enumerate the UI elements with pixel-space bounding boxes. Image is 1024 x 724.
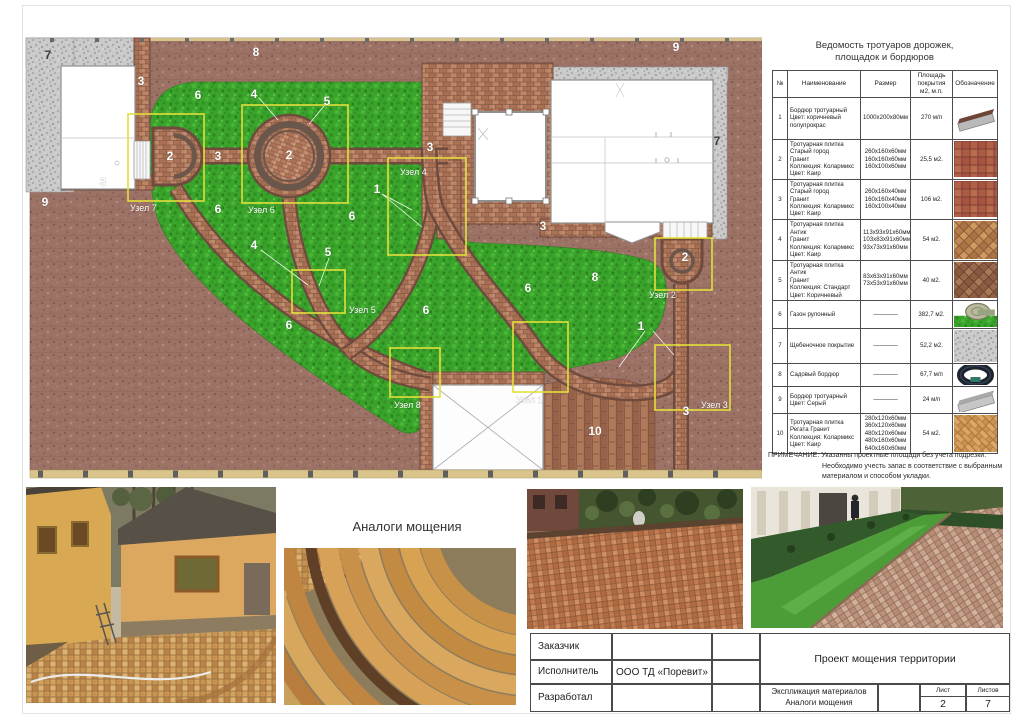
table-cell: 4	[773, 219, 788, 260]
pavers-diamond-tan-swatch	[954, 221, 997, 259]
table-cell: 54 м2.	[911, 219, 953, 260]
coil-swatch	[954, 365, 997, 385]
fence-bottom	[30, 470, 762, 478]
plan-number-label: 9	[42, 195, 49, 209]
table-cell: 52,2 м2.	[911, 329, 953, 364]
table-cell	[953, 414, 998, 454]
table-row: 8Садовый бордюр————67,7 м/п	[773, 364, 998, 387]
table-row: 4Тротуарная плиткаАнтикГранитКоллекция: …	[773, 219, 998, 260]
table-row: 10Тротуарная плиткаРегата ГранитКоллекци…	[773, 414, 998, 454]
titleblock-value-customer	[612, 633, 712, 660]
table-cell: ————	[861, 364, 911, 387]
pavers-diamond-brown-swatch	[954, 262, 997, 298]
plan-node-label: Узел 7	[130, 203, 157, 213]
titleblock-value-developer	[612, 684, 712, 712]
titleblock-label-contractor: Исполнитель	[530, 660, 612, 684]
table-cell: Тротуарная плиткаСтарый городГранитКолле…	[788, 139, 861, 179]
plan-node-label: Узел 4	[400, 167, 427, 177]
herringbone-swatch	[954, 415, 997, 452]
titleblock-cell-empty	[712, 684, 760, 712]
table-cell: 10	[773, 414, 788, 454]
column-header: Обозначение	[953, 70, 998, 97]
table-cell: 280х120х60мм360х120х60мм480х120х60мм480х…	[861, 414, 911, 454]
photos-caption: Аналоги мощения	[322, 519, 492, 534]
table-row: 7Щебеночное покрытие————52,2 м2.	[773, 329, 998, 364]
plan-number-label: 2	[682, 250, 689, 264]
column-header: Площадьпокрытиям2, м.п.	[911, 70, 953, 97]
table-cell: Тротуарная плиткаАнтикГранитКоллекция: К…	[788, 219, 861, 260]
table-cell: 270 м/п	[911, 97, 953, 139]
photo-paving-fan	[284, 548, 516, 710]
table-cell: ————	[861, 387, 911, 414]
materials-table: №НаименованиеРазмерПлощадьпокрытиям2, м.…	[772, 70, 998, 454]
table-row: 6Газон рулонный————382,7 м2.	[773, 301, 998, 329]
table-cell	[953, 329, 998, 364]
table-cell	[953, 260, 998, 300]
column-header: Размер	[861, 70, 911, 97]
plan-number-label: 7	[714, 134, 721, 148]
drawing-sheet: 73896452323713966345286661103 Узел 7Узел…	[0, 0, 1024, 724]
table-row: 3Тротуарная плиткаСтарый городГранитКолл…	[773, 179, 998, 219]
pavers-square-swatch	[954, 141, 997, 177]
titleblock-value-contractor: ООО ТД «Поревит»	[612, 660, 712, 684]
table-cell: Газон рулонный	[788, 301, 861, 329]
plan-number-label: 6	[349, 209, 356, 223]
table-cell: 260х160х40мм160х160х40мм160х100х40мм	[861, 179, 911, 219]
table-cell: 7	[773, 329, 788, 364]
table-row: 5Тротуарная плиткаАнтикГранитКоллекция: …	[773, 260, 998, 300]
titleblock-cell-empty	[712, 633, 760, 660]
plan-number-label: 8	[592, 270, 599, 284]
site-plan-drawing: 73896452323713966345286661103 Узел 7Узел…	[16, 28, 762, 480]
table-cell: Бордюр тротуарныйЦвет: коричневыйполупро…	[788, 97, 861, 139]
plan-number-label: 3	[100, 175, 107, 189]
plan-number-label: 6	[286, 318, 293, 332]
plan-number-label: 8	[253, 45, 260, 59]
table-cell: Тротуарная плиткаАнтикГранитКоллекция: С…	[788, 260, 861, 300]
table-cell: 25,5 м2.	[911, 139, 953, 179]
table-cell	[953, 301, 998, 329]
titleblock-sheet-title: Экспликация материалов Аналоги мощения	[760, 684, 878, 712]
titleblock-label-customer: Заказчик	[530, 633, 612, 660]
table-cell: Щебеночное покрытие	[788, 329, 861, 364]
plan-number-label: 3	[138, 74, 145, 88]
title-block: Заказчик Исполнитель ООО ТД «Поревит» Пр…	[530, 633, 1010, 712]
table-cell: 3	[773, 179, 788, 219]
plan-number-label: 3	[215, 149, 222, 163]
curb-brown-swatch	[954, 99, 997, 138]
titleblock-cell-empty	[878, 684, 920, 712]
table-cell: 1000х200х80мм	[861, 97, 911, 139]
table-row: 9Бордюр тротуарныйЦвет: Серый————24 м/п	[773, 387, 998, 414]
table-cell: 1	[773, 97, 788, 139]
table-cell: ————	[861, 329, 911, 364]
table-cell: 54 м2.	[911, 414, 953, 454]
table-cell	[953, 364, 998, 387]
plan-node-label: Узел 8	[394, 400, 421, 410]
plan-number-label: 1	[374, 182, 381, 196]
photo-paving-alley	[751, 487, 1003, 633]
titleblock-label-developer: Разработал	[530, 684, 612, 712]
plan-number-label: 7	[45, 48, 52, 62]
table-cell: 6	[773, 301, 788, 329]
note: ПРИМЕЧАНИЕ: Указанны проектные площади б…	[768, 451, 1020, 483]
photo-paving-construction	[26, 487, 276, 708]
table-row: 1Бордюр тротуарныйЦвет: коричневыйполупр…	[773, 97, 998, 139]
table-cell: Тротуарная плиткаРегата ГранитКоллекция:…	[788, 414, 861, 454]
plan-number-label: 3	[540, 219, 547, 233]
plan-number-label: 2	[286, 148, 293, 162]
materials-table-title: Ведомость тротуаров дорожек, площадок и …	[769, 40, 1000, 65]
plan-number-label: 6	[423, 303, 430, 317]
note-label: ПРИМЕЧАНИЕ:	[768, 452, 821, 459]
table-cell	[953, 139, 998, 179]
building-main	[551, 80, 713, 243]
plan-number-label: 6	[195, 88, 202, 102]
table-cell: 5	[773, 260, 788, 300]
plan-number-label: 6	[215, 202, 222, 216]
titleblock-sheet-number: Лист2	[920, 684, 966, 712]
table-cell	[953, 179, 998, 219]
note-line: материалом и способом укладки.	[822, 472, 1020, 483]
materials-table-block: Ведомость тротуаров дорожек, площадок и …	[769, 40, 1000, 454]
plan-number-label: 9	[673, 40, 680, 54]
titleblock-cell-empty	[712, 660, 760, 684]
note-line: Необходимо учесть запас в соответствие с…	[822, 462, 1020, 473]
plan-number-label: 4	[251, 87, 258, 101]
table-cell: Садовый бордюр	[788, 364, 861, 387]
garage-pad	[420, 372, 544, 470]
plan-node-label: Узел 6	[248, 205, 275, 215]
curb-gray-swatch	[954, 388, 997, 412]
photo-paving-courtyard	[527, 489, 743, 634]
plan-node-label: Узел 1	[516, 395, 543, 405]
table-cell: 67,7 м/п	[911, 364, 953, 387]
column-header: Наименование	[788, 70, 861, 97]
note-line: ПРИМЕЧАНИЕ: Указанны проектные площади б…	[768, 451, 1020, 462]
plan-number-label: 2	[167, 149, 174, 163]
table-cell: 83х63х91х60мм73х53х91х60мм	[861, 260, 911, 300]
table-cell	[953, 219, 998, 260]
table-cell: 106 м2.	[911, 179, 953, 219]
plan-node-label: Узел 2	[649, 290, 676, 300]
table-cell	[953, 387, 998, 414]
plan-number-label: 4	[251, 238, 258, 252]
plan-number-label: 5	[325, 245, 332, 259]
titleblock-project-title: Проект мощения территории	[760, 633, 1010, 684]
table-cell: 2	[773, 139, 788, 179]
table-cell: 40 м2.	[911, 260, 953, 300]
site-plan: 73896452323713966345286661103 Узел 7Узел…	[16, 28, 762, 480]
table-cell: 382,7 м2.	[911, 301, 953, 329]
table-cell: Бордюр тротуарныйЦвет: Серый	[788, 387, 861, 414]
plan-number-label: 3	[427, 140, 434, 154]
plan-number-label: 3	[683, 404, 690, 418]
plan-node-label: Узел 3	[701, 400, 728, 410]
table-cell: Тротуарная плиткаСтарый городГранитКолле…	[788, 179, 861, 219]
plan-number-label: 10	[588, 424, 602, 438]
pavers-square-swatch	[954, 181, 997, 217]
titleblock-sheets-total: Листов7	[966, 684, 1010, 712]
plan-number-label: 5	[324, 94, 331, 108]
table-row: 2Тротуарная плиткаСтарый городГранитКолл…	[773, 139, 998, 179]
plan-node-label: Узел 5	[349, 305, 376, 315]
table-cell: 113х93х91х60мм103х83х91х60мм93х73х91х60м…	[861, 219, 911, 260]
table-cell: 260х160х60мм160х160х60мм160х100х60мм	[861, 139, 911, 179]
gravel-swatch	[954, 330, 997, 362]
table-cell: ————	[861, 301, 911, 329]
plaza-small	[153, 128, 202, 185]
table-cell	[953, 97, 998, 139]
lawn-roll-swatch	[954, 302, 997, 327]
table-cell: 24 м/п	[911, 387, 953, 414]
plan-number-label: 6	[525, 281, 532, 295]
column-header: №	[773, 70, 788, 97]
table-cell: 9	[773, 387, 788, 414]
table-cell: 8	[773, 364, 788, 387]
plan-number-label: 1	[638, 319, 645, 333]
